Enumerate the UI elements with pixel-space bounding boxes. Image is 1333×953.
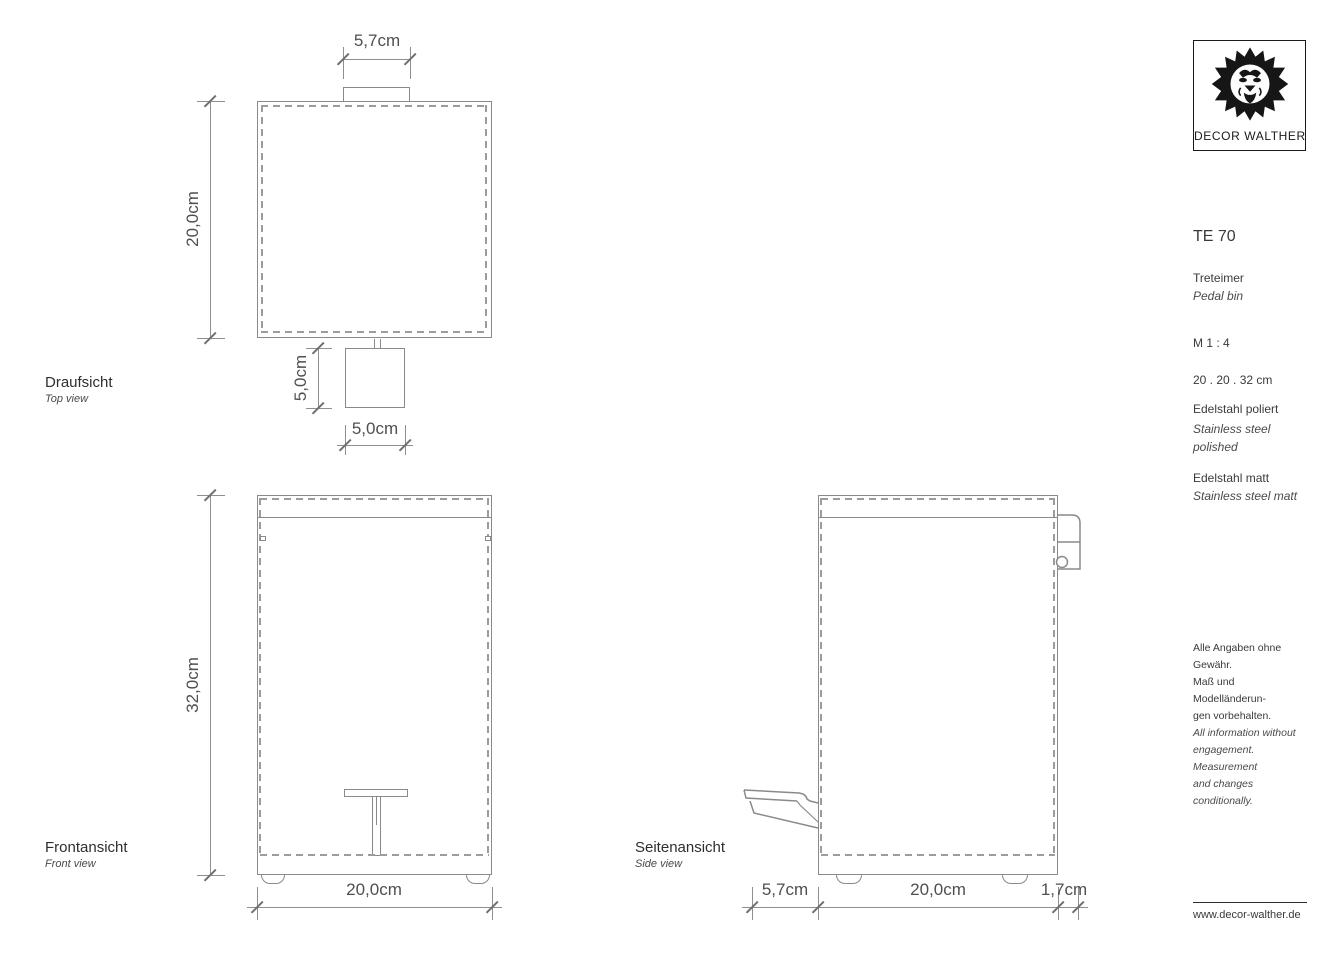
brand-logo: DECOR WALTHER (1193, 40, 1306, 151)
front-view-label-en: Front view (45, 858, 96, 870)
product-scale: M 1 : 4 (1193, 336, 1307, 350)
brand-name: DECOR WALTHER (1194, 129, 1305, 143)
lion-icon (1211, 45, 1289, 123)
top-view-lid-tab (343, 87, 410, 102)
material-1-en: Stainless steel polished (1193, 420, 1307, 456)
product-size: 20 . 20 . 32 cm (1193, 373, 1307, 387)
material-2-de: Edelstahl matt (1193, 471, 1307, 485)
front-view-foot-right (466, 875, 490, 884)
material-1-de: Edelstahl poliert (1193, 402, 1307, 416)
dim-side-handle: 1,7cm (1041, 880, 1087, 900)
side-view-foot-right (1002, 875, 1028, 884)
top-view-label: Draufsicht (45, 374, 113, 391)
top-view-label-en: Top view (45, 393, 88, 405)
side-view-label-en: Side view (635, 858, 682, 870)
website-url: www.decor-walther.de (1193, 909, 1307, 921)
datasheet: 5,7cm 20,0cm 5,0cm 5,0cm (0, 0, 1333, 953)
front-view-label: Frontansicht (45, 839, 128, 856)
top-view-pedal (345, 348, 405, 408)
side-view-handle (1048, 505, 1092, 585)
product-name-en: Pedal bin (1193, 289, 1307, 303)
footer-rule (1193, 902, 1307, 903)
material-2-en: Stainless steel matt (1193, 489, 1307, 503)
dim-side-depth: 20,0cm (910, 880, 966, 900)
product-model: TE 70 (1193, 228, 1307, 246)
dim-side-pedal: 5,7cm (762, 880, 808, 900)
front-view-foot-left (261, 875, 285, 884)
side-view-foot-left (836, 875, 862, 884)
front-view-lid-seam (257, 517, 492, 518)
side-view-body (818, 495, 1058, 875)
disclaimer: Alle Angaben ohne Gewähr. Maß und Modell… (1193, 640, 1307, 810)
top-view-body (257, 101, 492, 338)
side-view-lid-seam (818, 517, 1058, 518)
side-view-pedal (740, 782, 820, 836)
front-view-hinge-pin-right (485, 536, 491, 541)
front-view-hinge-pin-left (260, 536, 266, 541)
product-name-de: Treteimer (1193, 271, 1307, 285)
side-view-label: Seitenansicht (635, 839, 725, 856)
